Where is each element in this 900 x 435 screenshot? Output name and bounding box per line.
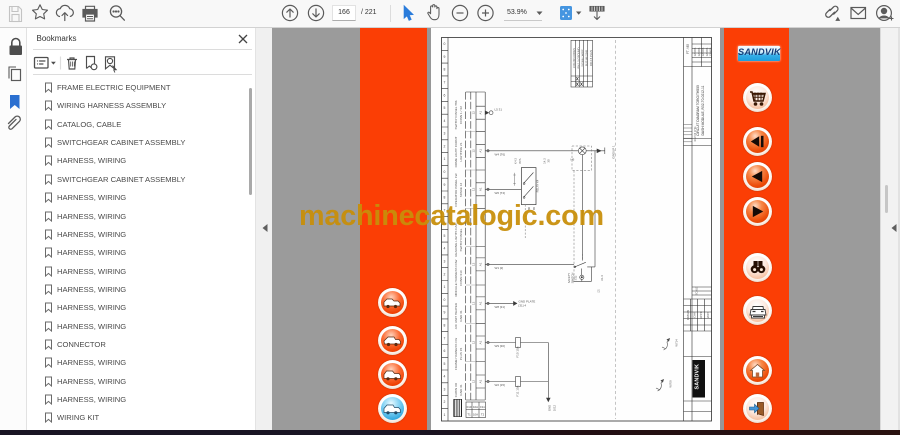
svg-text:BN 1.5 GROUND: BN 1.5 GROUND xyxy=(576,47,580,68)
svg-text:0: 0 xyxy=(443,170,445,174)
svg-text:2: 2 xyxy=(443,400,445,404)
svg-text:CABIN I/O: CABIN I/O xyxy=(454,382,458,397)
svg-text:3: 3 xyxy=(443,132,445,136)
svg-text:5: 5 xyxy=(443,234,445,238)
svg-text:W714: W714 xyxy=(674,339,678,347)
svg-text:0: 0 xyxy=(443,42,445,46)
svg-text:[31] 4: [31] 4 xyxy=(518,304,526,308)
svg-text:MODULE HARNESS FDW: MODULE HARNESS FDW xyxy=(454,259,458,296)
svg-text:GND: GND xyxy=(547,405,551,411)
svg-text:F10 10A: F10 10A xyxy=(515,346,519,357)
svg-text:9: 9 xyxy=(443,311,445,315)
svg-text:W8 [31]: W8 [31] xyxy=(494,305,505,309)
svg-text:T2: T2 xyxy=(480,413,484,417)
svg-text:12: 12 xyxy=(471,149,475,153)
svg-text:9: 9 xyxy=(443,55,445,59)
svg-text:1: 1 xyxy=(443,285,445,289)
svg-text:L5 31: L5 31 xyxy=(494,108,502,112)
svg-text:T1: T1 xyxy=(467,413,471,417)
svg-text:A1: A1 xyxy=(478,340,482,344)
svg-text:GROUP 1: GROUP 1 xyxy=(611,145,615,159)
svg-text:W2 [15]: W2 [15] xyxy=(494,383,505,387)
svg-text:4: 4 xyxy=(443,247,445,251)
svg-text:12: 12 xyxy=(471,380,475,384)
svg-text:DASH MODULE, R32-T0-0212-11: DASH MODULE, R32-T0-0212-11 xyxy=(700,85,704,135)
svg-text:REV 03 CHG: REV 03 CHG xyxy=(694,127,697,142)
svg-text:S12: S12 xyxy=(573,275,577,280)
svg-text:12: 12 xyxy=(471,262,475,266)
svg-text:10A: 10A xyxy=(473,405,478,409)
svg-text:F11: F11 xyxy=(480,405,485,409)
svg-text:GND 31: GND 31 xyxy=(459,310,463,321)
svg-text:3: 3 xyxy=(443,260,445,264)
svg-text:W709: W709 xyxy=(668,380,672,388)
svg-text:7: 7 xyxy=(443,81,445,85)
svg-text:A1: A1 xyxy=(478,187,482,191)
svg-text:SCALE: SCALE xyxy=(694,286,698,295)
svg-text:W6 [T4]: W6 [T4] xyxy=(494,191,505,195)
svg-text:DOME LIGHT FRONT: DOME LIGHT FRONT xyxy=(454,137,458,168)
svg-text:0: 0 xyxy=(443,298,445,302)
svg-text:F10: F10 xyxy=(466,405,471,409)
svg-text:8: 8 xyxy=(443,196,445,200)
svg-text:12: 12 xyxy=(471,301,475,305)
svg-text:5: 5 xyxy=(443,362,445,366)
svg-text:K4 2: K4 2 xyxy=(513,158,517,164)
svg-text:DRAWN: DRAWN xyxy=(686,310,690,320)
svg-text:CHK: CHK xyxy=(692,312,696,318)
svg-text:5: 5 xyxy=(443,106,445,110)
svg-text:F11 10A: F11 10A xyxy=(515,385,519,396)
svg-text:A/C UNIT HEATER: A/C UNIT HEATER xyxy=(454,302,458,329)
svg-text:30: 30 xyxy=(546,159,550,163)
svg-text:10A: 10A xyxy=(473,413,478,417)
svg-text:[2]: [2] xyxy=(596,289,600,292)
svg-text:4: 4 xyxy=(443,119,445,123)
svg-text:120456: 120456 xyxy=(708,47,712,56)
svg-text:SPARE 12: SPARE 12 xyxy=(459,182,463,197)
svg-text:120456: 120456 xyxy=(701,47,705,56)
svg-text:A1: A1 xyxy=(478,149,482,153)
svg-text:PLUS 15: PLUS 15 xyxy=(459,348,463,361)
svg-text:BUS WI 2345: BUS WI 2345 xyxy=(584,49,588,66)
svg-text:LIGHTING 21: LIGHTING 21 xyxy=(459,142,463,161)
svg-text:W4 [T6]: W4 [T6] xyxy=(494,152,505,156)
svg-text:COLOR CODES: COLOR CODES xyxy=(572,48,576,68)
svg-text:7: 7 xyxy=(443,336,445,340)
svg-text:FRAME HARNESS FW: FRAME HARNESS FW xyxy=(454,338,458,370)
svg-text:RELAY K4: RELAY K4 xyxy=(535,179,539,192)
svg-text:APPR: APPR xyxy=(699,311,703,319)
svg-text:120456: 120456 xyxy=(693,47,697,56)
svg-text:3: 3 xyxy=(443,387,445,391)
svg-text:9: 9 xyxy=(443,183,445,187)
svg-text:12: 12 xyxy=(471,187,475,191)
svg-text:X1.4: X1.4 xyxy=(600,275,604,281)
svg-text:120456: 120456 xyxy=(705,47,709,56)
svg-text:SANDVIK: SANDVIK xyxy=(694,364,700,390)
svg-text:SWITCH PANEL: SWITCH PANEL xyxy=(459,228,463,251)
svg-text:8: 8 xyxy=(443,324,445,328)
svg-text:6: 6 xyxy=(443,349,445,353)
svg-text:120456: 120456 xyxy=(697,47,701,56)
svg-text:1: 1 xyxy=(443,413,445,417)
svg-text:FT / 85: FT / 85 xyxy=(686,44,690,54)
svg-text:1012: 1012 xyxy=(552,404,556,411)
svg-text:A1: A1 xyxy=(478,301,482,305)
svg-text:2015: 2015 xyxy=(706,311,710,318)
svg-text:4: 4 xyxy=(443,375,445,379)
svg-text:W9 [30]: W9 [30] xyxy=(494,344,505,348)
svg-text:A1: A1 xyxy=(478,262,482,266)
svg-text:CONN 1 / X2: CONN 1 / X2 xyxy=(459,106,463,124)
svg-text:12: 12 xyxy=(471,341,475,345)
svg-text:2: 2 xyxy=(443,144,445,148)
svg-text:SIGNAL WIRE: SIGNAL WIRE xyxy=(580,49,584,67)
svg-text:A1: A1 xyxy=(478,111,482,115)
svg-text:2: 2 xyxy=(443,272,445,276)
svg-text:1: 1 xyxy=(443,157,445,161)
svg-text:12: 12 xyxy=(471,111,475,115)
svg-text:6: 6 xyxy=(443,93,445,97)
svg-text:H6: H6 xyxy=(570,158,574,162)
svg-text:A1: A1 xyxy=(478,379,482,383)
svg-text:SWITCH PANEL T86: SWITCH PANEL T86 xyxy=(454,100,458,129)
svg-text:87A: 87A xyxy=(518,158,522,163)
svg-text:W1 [2]: W1 [2] xyxy=(494,266,503,270)
svg-text:CONN X10: CONN X10 xyxy=(459,270,463,286)
svg-text:RD 2.5 PLUS: RD 2.5 PLUS xyxy=(589,50,593,66)
svg-text:GND 31: GND 31 xyxy=(459,384,463,395)
svg-text:8: 8 xyxy=(443,68,445,72)
